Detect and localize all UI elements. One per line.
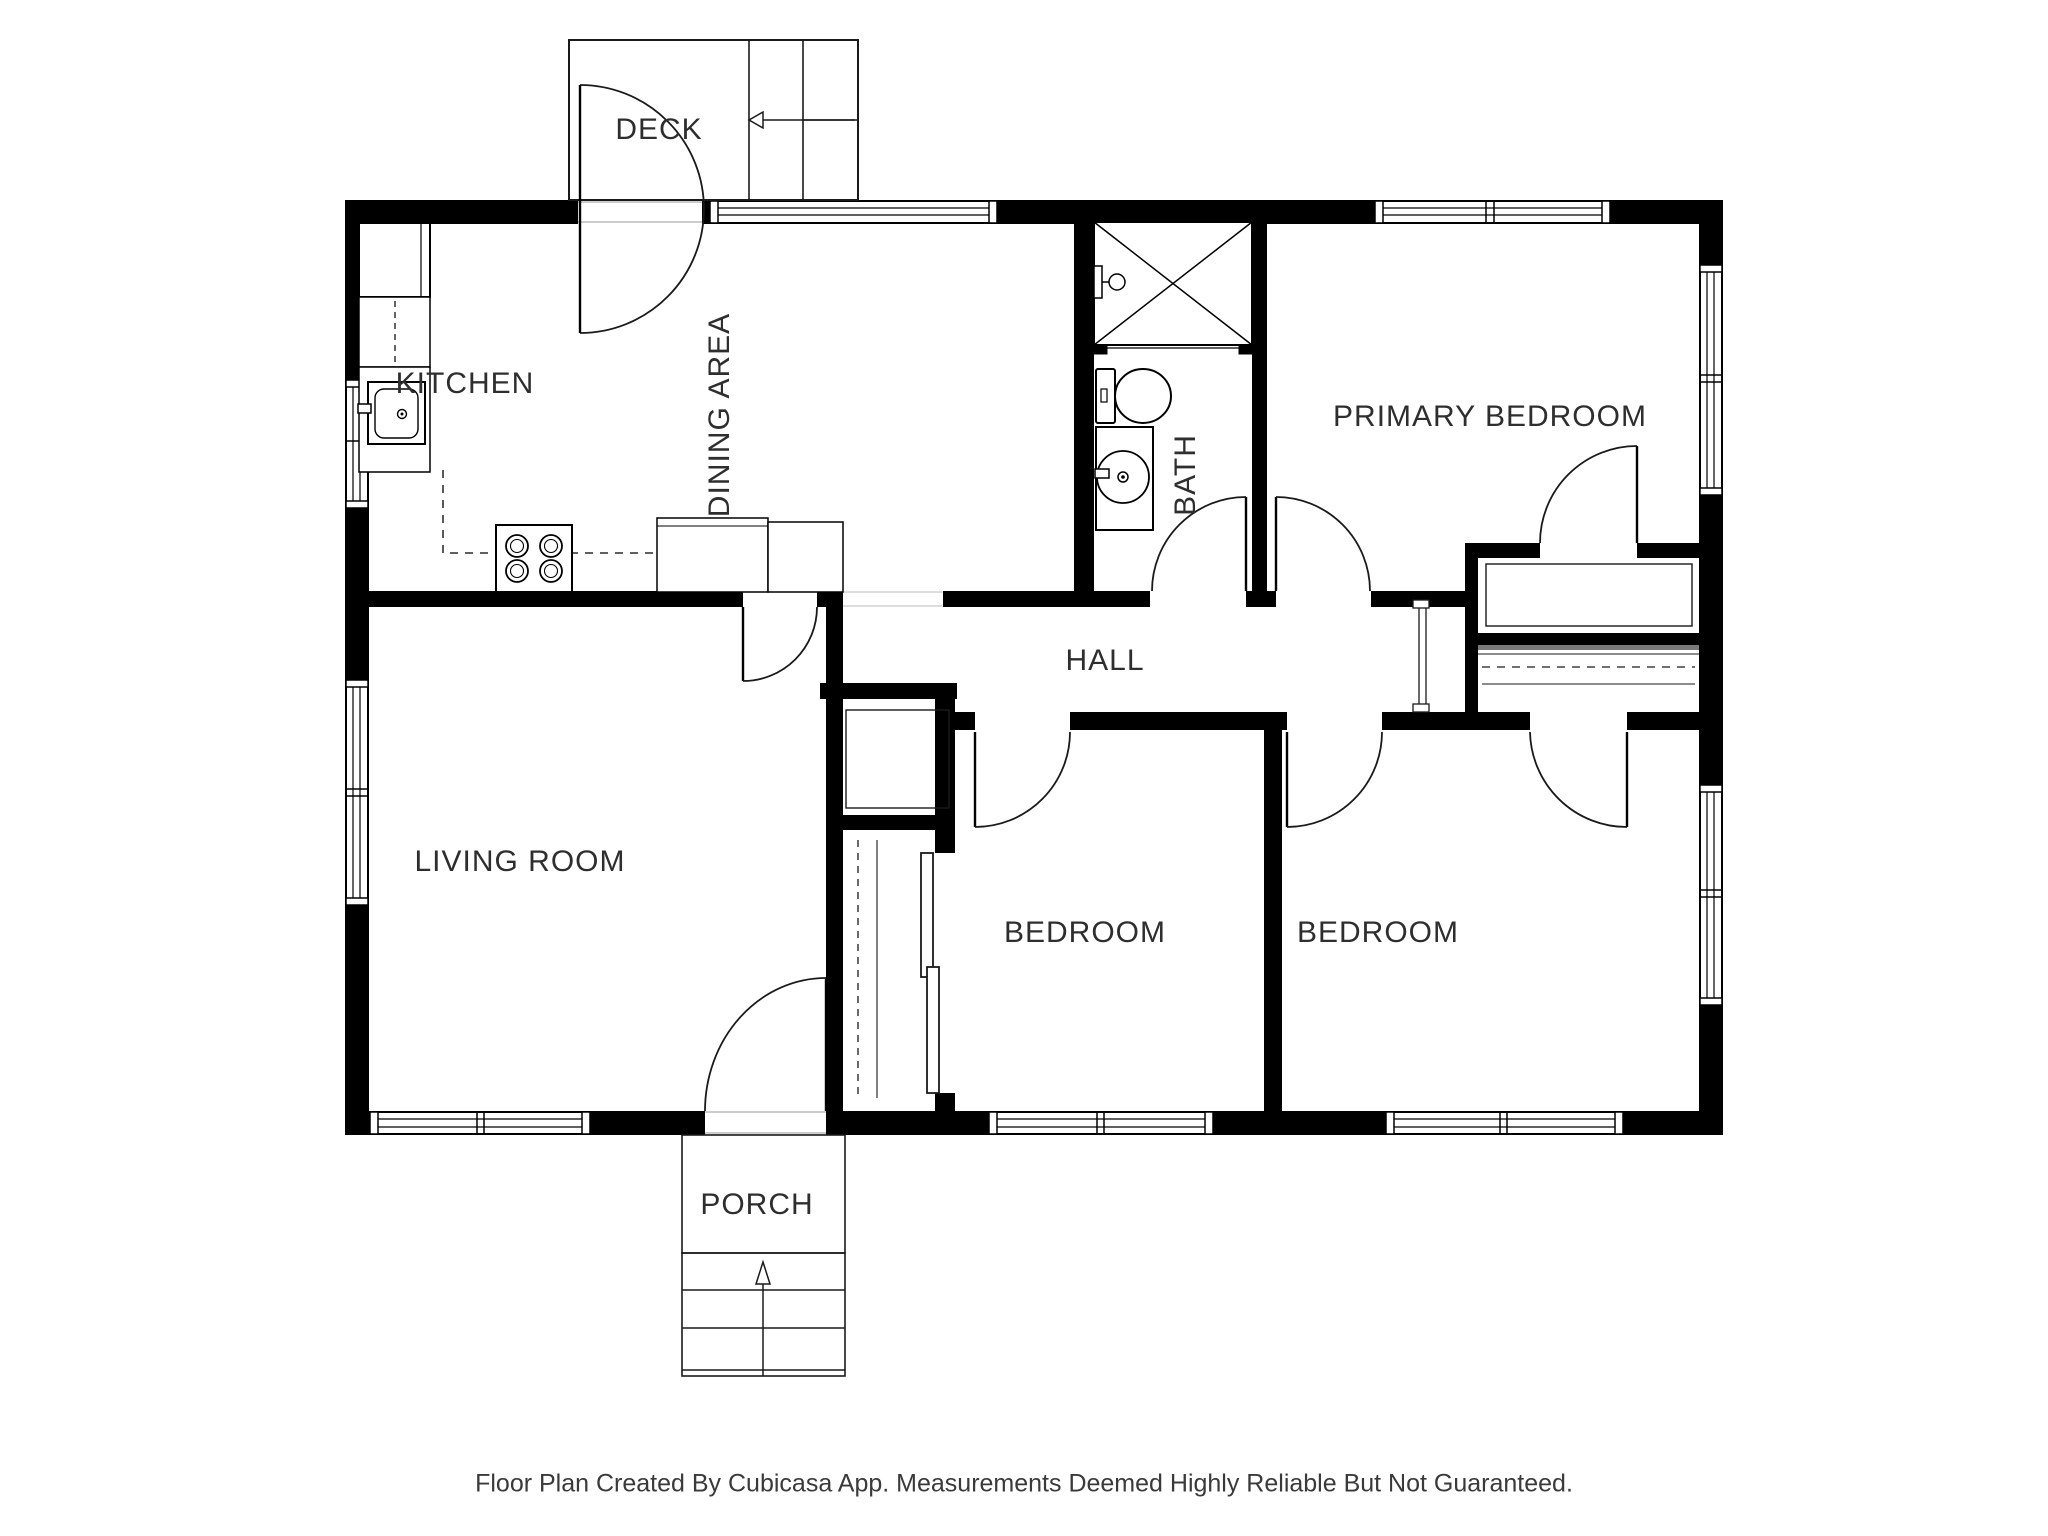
wall-bottom [1213, 1111, 1386, 1135]
vanity-sink-icon [1095, 427, 1153, 530]
window-icon [1386, 1112, 1623, 1134]
wall-bath-left [1074, 222, 1094, 591]
wall-closet-bedroom [935, 1093, 955, 1111]
floor-plan-drawing [0, 0, 2048, 1536]
wall-closets-left [1465, 543, 1478, 727]
bedroom-left-door door-swing-icon [975, 732, 1070, 827]
wall-hall-top [1246, 591, 1276, 607]
stair-direction-arrow-icon [749, 112, 855, 128]
stove-icon [496, 525, 572, 592]
porch-structure [682, 1135, 845, 1376]
room-label-bath: BATH [1169, 434, 1203, 516]
wall-bath-right [1252, 222, 1267, 591]
window-icon [370, 1112, 590, 1134]
kitchen-fixtures [358, 223, 843, 592]
room-label-deck: DECK [615, 113, 702, 147]
wall-bottom [826, 1111, 989, 1135]
wall-kitchen-living [369, 591, 743, 607]
wall-hall-bottom [1627, 712, 1699, 730]
window-icon [989, 1112, 1213, 1134]
room-label-dining-area: DINING AREA [703, 313, 737, 517]
wall-bottom [590, 1111, 705, 1135]
room-label-bedroom-left: BEDROOM [1004, 916, 1166, 950]
window-icon [346, 680, 368, 905]
front-door door-swing-icon [705, 978, 826, 1133]
wall-top [345, 200, 578, 224]
toilet-icon [1096, 369, 1171, 423]
wall-top [997, 200, 1375, 224]
room-label-bedroom-right: BEDROOM [1297, 916, 1459, 950]
bedroom-left-closet [858, 840, 939, 1098]
room-label-primary-bedroom: PRIMARY BEDROOM [1333, 400, 1647, 434]
wall-primary-closet-top [1637, 543, 1699, 558]
wall-bedroom-divider [1264, 730, 1282, 1111]
wall-hall-top [943, 591, 1150, 607]
window-icon [1700, 265, 1722, 495]
floor-plan-page: DECK KITCHEN DINING AREA BATH PRIMARY BE… [0, 0, 2048, 1536]
bedroom-right-closet [1478, 645, 1699, 684]
wall-right [1699, 200, 1723, 265]
hall-linen-closet [1413, 600, 1429, 712]
kitchen-living-door door-swing-icon [743, 607, 817, 681]
wall-hall-bottom [1382, 712, 1530, 730]
sliding-door-icon [921, 853, 933, 977]
kitchen-counter-icon [657, 518, 843, 592]
sliding-door-icon [927, 967, 939, 1093]
dishwasher-icon [359, 297, 430, 367]
room-label-living-room: LIVING ROOM [414, 845, 625, 879]
wall-hall-bottom [1070, 712, 1287, 730]
primary-bedroom-door door-swing-icon [1276, 497, 1370, 591]
room-label-hall: HALL [1065, 644, 1144, 678]
wall-closet-bedroom [935, 683, 955, 853]
room-label-kitchen: KITCHEN [396, 367, 535, 401]
room-label-porch: PORCH [700, 1188, 813, 1222]
closet-shelf-icon [846, 710, 949, 808]
window-icon [1375, 201, 1610, 223]
primary-closet-door door-swing-icon [1540, 446, 1637, 543]
window-icon [1700, 785, 1722, 1005]
wall-between-closets [1465, 633, 1699, 645]
wall-right [1699, 495, 1723, 785]
window-icon [710, 201, 997, 223]
wall-right [1699, 1005, 1723, 1135]
wall-left [345, 905, 369, 1135]
deck-structure [569, 40, 858, 200]
wall-living-closet [826, 591, 843, 1111]
entry-arrow-icon [756, 1262, 770, 1376]
closet-shelf-icon [1486, 564, 1692, 626]
wall-left [345, 508, 369, 680]
wall-hall-bottom [955, 712, 975, 730]
footer-disclaimer: Floor Plan Created By Cubicasa App. Meas… [475, 1470, 1573, 1499]
refrigerator-icon [359, 223, 430, 297]
bedroom-right-door door-swing-icon [1287, 732, 1382, 827]
bedroom-right-closet-door door-swing-icon [1530, 732, 1627, 827]
